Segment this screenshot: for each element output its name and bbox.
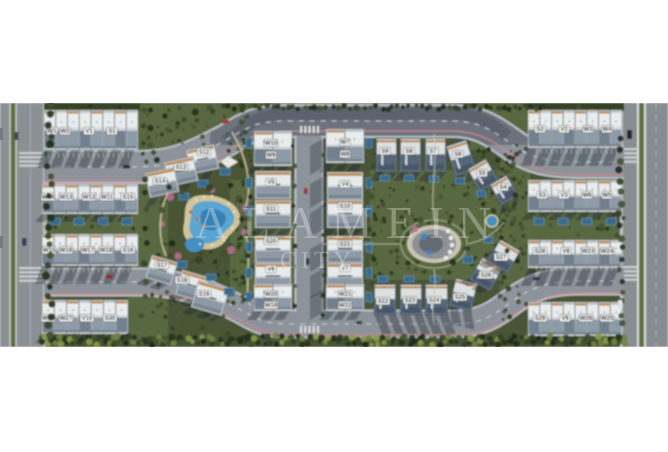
svg-text:CITY: CITY — [280, 248, 356, 274]
svg-text:ALAMEIN: ALAMEIN — [195, 197, 505, 248]
